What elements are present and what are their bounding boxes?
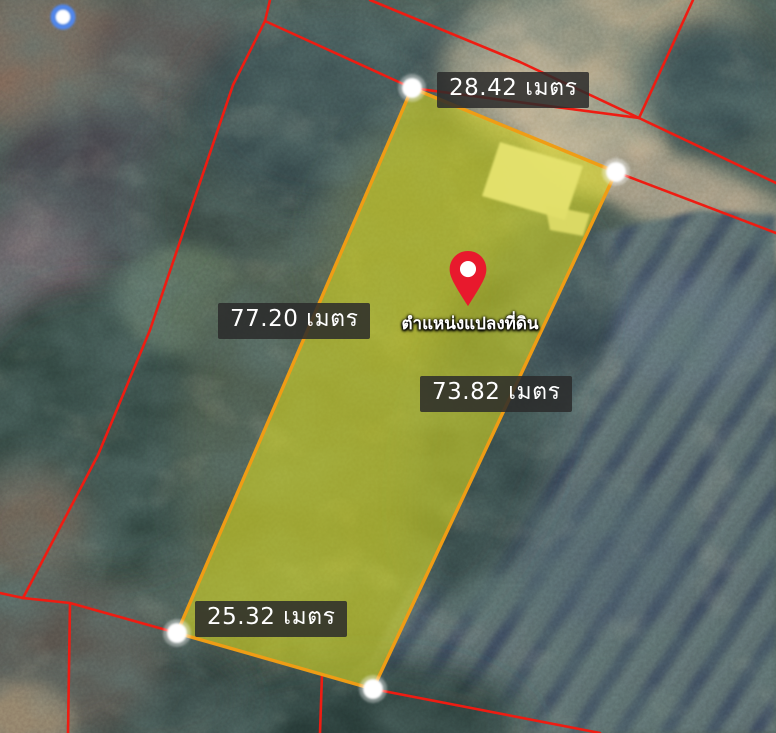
location-pin-icon[interactable] [447,249,489,309]
satellite-map [0,0,776,733]
measurement-label-right-edge: 73.82 เมตร [420,376,572,412]
location-pin-label: ตำแหน่งแปลงที่ดิน [390,310,550,337]
plot-corner-marker-top-right[interactable] [602,158,630,186]
plot-corner-marker-bottom-left[interactable] [163,619,191,647]
plot-corner-marker-top-left[interactable] [398,74,426,102]
measurement-label-top-edge: 28.42 เมตร [437,72,589,108]
gps-location-dot-icon [53,7,73,27]
measurement-label-bottom-edge: 25.32 เมตร [195,601,347,637]
map-canvas[interactable]: 28.42 เมตร 77.20 เมตร 73.82 เมตร 25.32 เ… [0,0,776,733]
plot-corner-marker-bottom-right[interactable] [359,675,387,703]
measurement-label-left-edge: 77.20 เมตร [218,303,370,339]
